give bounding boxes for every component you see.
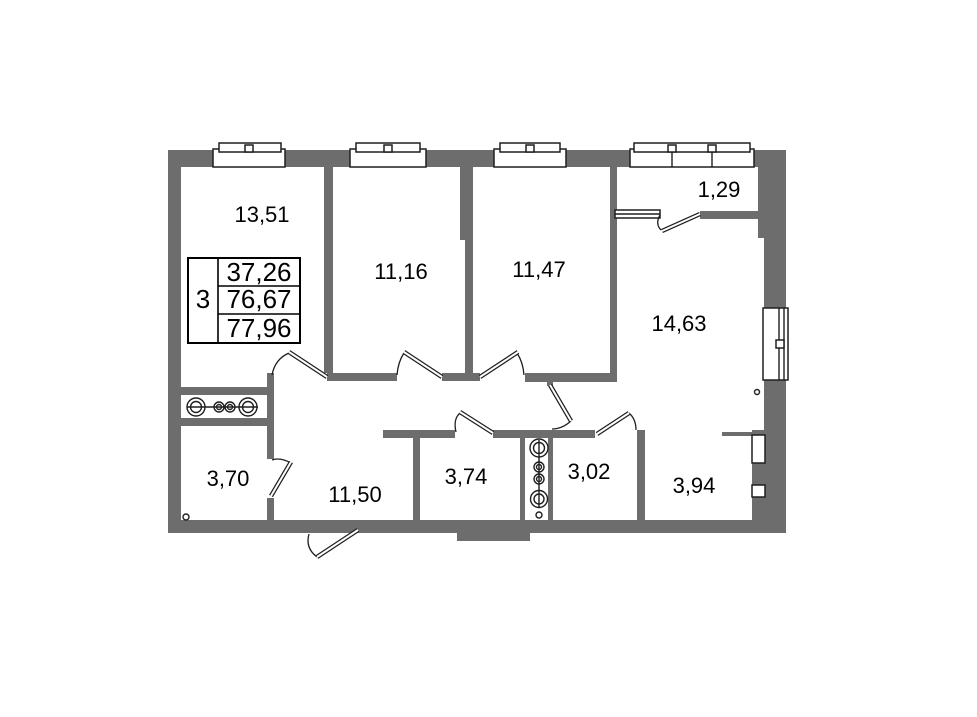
wall-segment [267, 373, 274, 459]
door-bathroom-left [271, 459, 291, 496]
vent-shaft [752, 435, 765, 463]
wall-segment [520, 438, 525, 522]
window-handle [708, 145, 716, 152]
table-value-2: 76,67 [226, 284, 291, 314]
wall-segment [548, 438, 553, 522]
room-label-11-47: 11,47 [512, 257, 565, 282]
door-leaf [317, 530, 358, 557]
riser-pipes-vertical [530, 439, 548, 518]
room-label-11-16: 11,16 [374, 259, 427, 284]
wall-segment [610, 167, 617, 382]
table-value-1: 37,26 [226, 257, 291, 287]
floor-plan: 3 37,26 76,67 77,96 13,51 11,16 11,47 1,… [0, 0, 977, 717]
window-handle [776, 340, 784, 348]
wall-segment [637, 430, 645, 522]
door-arc [397, 353, 404, 375]
window-handle [384, 145, 392, 152]
door-leaf [404, 352, 442, 377]
wall-segment [465, 240, 473, 373]
door-room-top-mid-left [397, 352, 442, 377]
wall-segment [168, 150, 181, 533]
wall-segment [442, 373, 480, 381]
room-label-3-70: 3,70 [207, 466, 250, 491]
wall-segment [457, 533, 530, 541]
door-leaf [289, 352, 327, 377]
window-handle [668, 145, 676, 152]
door-leaf [550, 385, 571, 421]
window-right [763, 308, 788, 380]
window-top-3 [494, 143, 566, 167]
wall-segment [758, 150, 786, 238]
door-entrance [308, 530, 358, 557]
vent-dot [183, 514, 189, 520]
door-balcony [658, 214, 700, 231]
room-label-3-94: 3,94 [673, 473, 716, 498]
door-arc [272, 353, 289, 375]
wall-segment [722, 432, 752, 436]
wall-segment [168, 520, 786, 533]
room-label-3-74: 3,74 [445, 464, 488, 489]
window-handle [245, 145, 253, 152]
floor-plan-page: 3 37,26 76,67 77,96 13,51 11,16 11,47 1,… [0, 0, 977, 717]
door-leaf [271, 462, 291, 496]
door-arc [552, 421, 571, 429]
door-leaf [480, 352, 518, 377]
wall-segment [324, 167, 333, 373]
legend-table: 3 37,26 76,67 77,96 [188, 257, 300, 343]
vent-dot [536, 512, 542, 518]
table-rooms-count: 3 [196, 284, 210, 314]
door-leaf [662, 214, 700, 231]
vent-shaft [752, 485, 765, 497]
wall-segment [267, 498, 274, 522]
wall-segment [413, 430, 420, 522]
wall-segment [181, 387, 268, 395]
door-room-top-mid-right [480, 352, 524, 377]
door-arc [629, 413, 636, 430]
door-arc [308, 534, 317, 557]
window-top-2 [350, 143, 426, 167]
wall-segment [700, 211, 758, 219]
door-hall [550, 385, 571, 429]
window-sash [634, 143, 750, 152]
door-bathroom-mid [455, 412, 493, 433]
table-value-3: 77,96 [226, 313, 291, 343]
wall-segment [493, 430, 595, 438]
window-handle [526, 145, 534, 152]
room-label-11-50: 11,50 [328, 482, 381, 507]
door-arc [455, 413, 460, 432]
room-label-13-51: 13,51 [234, 202, 289, 227]
door-leaf [597, 413, 629, 434]
wall-segment [525, 373, 617, 382]
door-room-top-left [272, 352, 327, 377]
balcony-sill-window [615, 210, 660, 218]
window-top-1 [213, 143, 285, 167]
radiator-pipes-horizontal [187, 398, 258, 416]
wall-segment [547, 373, 553, 386]
window-balcony [630, 143, 754, 167]
wall-segment [181, 418, 268, 426]
room-label-14-63: 14,63 [651, 311, 706, 336]
wall-segment [327, 373, 397, 381]
door-arc [517, 353, 524, 375]
room-label-1-29: 1,29 [698, 177, 741, 202]
door-arc [272, 459, 291, 463]
door-leaf [460, 412, 493, 433]
door-wc [597, 413, 636, 434]
room-label-3-02: 3,02 [568, 459, 611, 484]
wall-segment [460, 167, 473, 240]
vent-dot [755, 390, 760, 395]
